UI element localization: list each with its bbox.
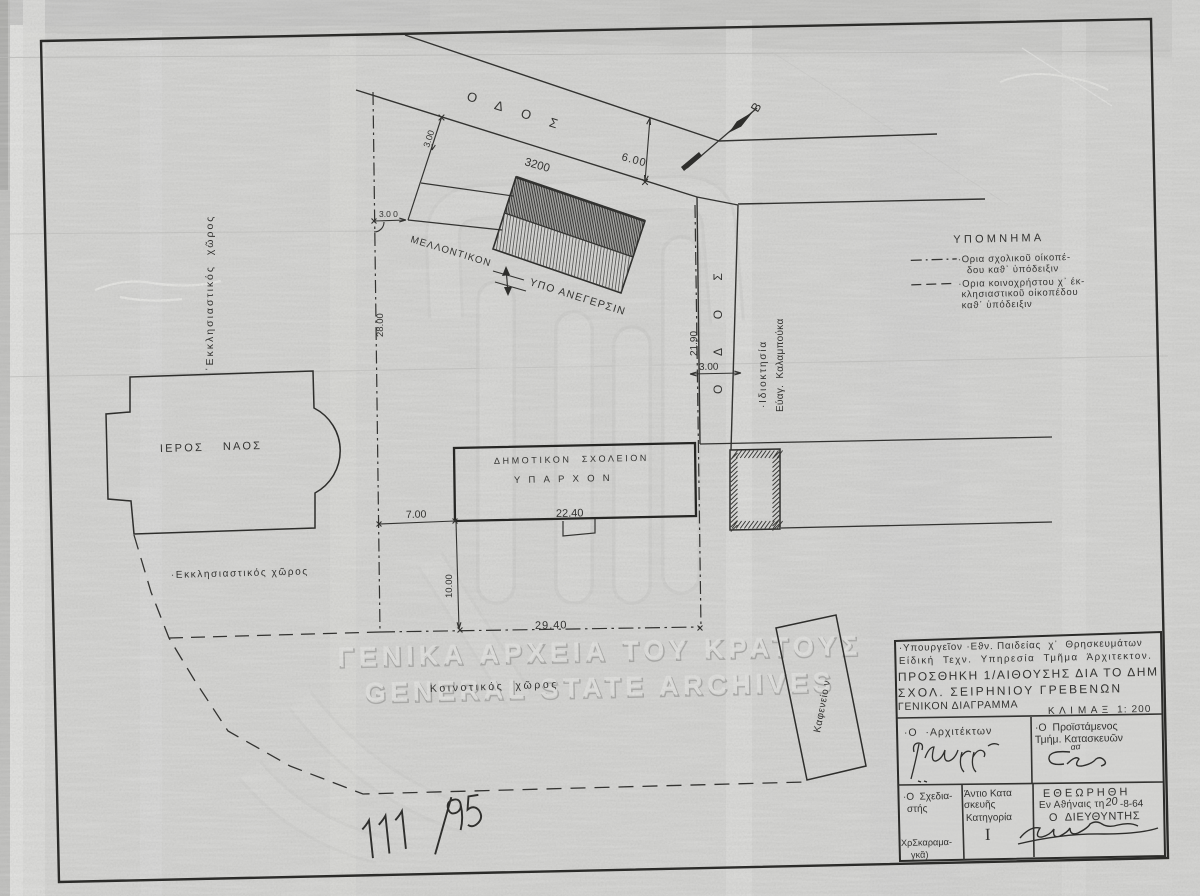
svg-text:Κατηγορία: Κατηγορία	[966, 811, 1013, 824]
svg-text:21.90: 21.90	[689, 331, 700, 356]
svg-text:-8-64: -8-64	[1120, 799, 1144, 810]
svg-text:7.00: 7.00	[406, 508, 427, 521]
svg-text:·Ο ·Αρχιτέκτων: ·Ο ·Αρχιτέκτων	[904, 725, 993, 739]
svg-text:ΝΑΟΣ: ΝΑΟΣ	[223, 440, 263, 453]
svg-text:καϑ᾿ ὑπόδειξιν: καϑ᾿ ὑπόδειξιν	[962, 299, 1033, 311]
svg-text:3.0 0: 3.0 0	[379, 209, 398, 219]
svg-text:3.00: 3.00	[699, 362, 719, 373]
svg-text:῾Εκκλησιαστικός χῶρος: ῾Εκκλησιαστικός χῶρος	[204, 215, 216, 371]
svg-text:Εύαγ. Καλαμπούκα: Εύαγ. Καλαμπούκα	[774, 318, 786, 412]
svg-text:ΙΕΡΟΣ: ΙΕΡΟΣ	[160, 442, 204, 455]
svg-text:δου καϑ᾿ ὑπόδειξιν: δου καϑ᾿ ὑπόδειξιν	[967, 263, 1059, 276]
svg-text:20: 20	[1104, 795, 1120, 809]
svg-text:Ι: Ι	[985, 825, 991, 844]
svg-text:·Ο Σχεδια-: ·Ο Σχεδια-	[903, 791, 953, 803]
svg-text:στής: στής	[907, 803, 928, 815]
svg-text:Κ Λ Ι Μ Α Ξ 1: 200: Κ Λ Ι Μ Α Ξ 1: 200	[1048, 704, 1152, 717]
svg-text:ΥΠΟΜΝΗΜΑ: ΥΠΟΜΝΗΜΑ	[953, 232, 1044, 246]
svg-text:10.00: 10.00	[444, 574, 455, 598]
svg-text:Εν Αϑήναις τη: Εν Αϑήναις τη	[1039, 798, 1105, 811]
svg-text:22.40: 22.40	[556, 507, 584, 520]
svg-text:ΓΕΝΙΚΟΝ ΔΙΑΓΡΑΜΜΑ: ΓΕΝΙΚΟΝ ΔΙΑΓΡΑΜΜΑ	[898, 698, 1019, 713]
svg-text:σκευῆς: σκευῆς	[964, 799, 996, 811]
svg-text:ΥΠΑΡΧΟΝ: ΥΠΑΡΧΟΝ	[514, 473, 618, 486]
svg-text:·Ιδιοκτησία: ·Ιδιοκτησία	[757, 340, 769, 408]
svg-text:γκᾶ): γκᾶ)	[911, 850, 929, 860]
svg-text:29.40: 29.40	[535, 619, 568, 632]
svg-text:ΧρΣκαραμα-: ΧρΣκαραμα-	[901, 837, 952, 848]
svg-text:Άντιο Κατα: Άντιο Κατα	[964, 788, 1012, 800]
